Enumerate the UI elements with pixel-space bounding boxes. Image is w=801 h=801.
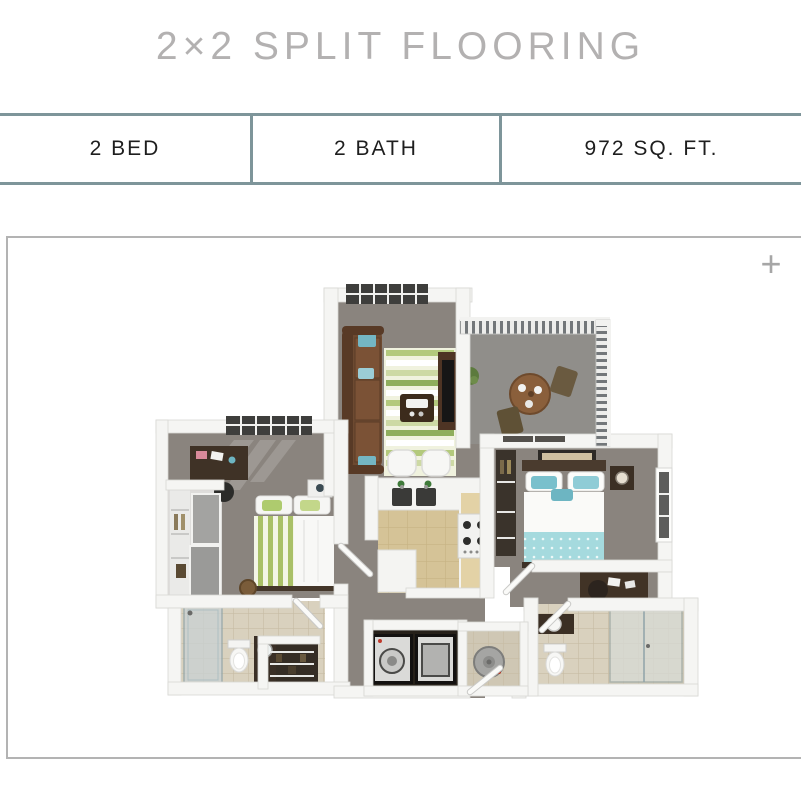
left-bedroom-window [226, 416, 312, 435]
tv-console [438, 352, 458, 430]
right-bedroom-window [656, 468, 672, 542]
bed-left [254, 496, 334, 591]
page-title: 2×2 SPLIT FLOORING [0, 27, 801, 66]
stat-baths: 2 BATH [250, 116, 499, 182]
stat-beds: 2 BED [0, 116, 250, 182]
closet-left [170, 490, 220, 596]
closet-right [496, 450, 516, 556]
stat-area: 972 SQ. FT. [499, 116, 801, 182]
coffee-table [400, 394, 434, 422]
shower-left [184, 606, 222, 684]
stats-bar: 2 BED 2 BATH 972 SQ. FT. [0, 113, 801, 185]
living-room-window [346, 284, 428, 304]
shower-right [608, 608, 684, 684]
bathroom-right [534, 608, 692, 684]
floor-plan-image [8, 238, 801, 757]
balcony-slider-door [503, 436, 565, 442]
